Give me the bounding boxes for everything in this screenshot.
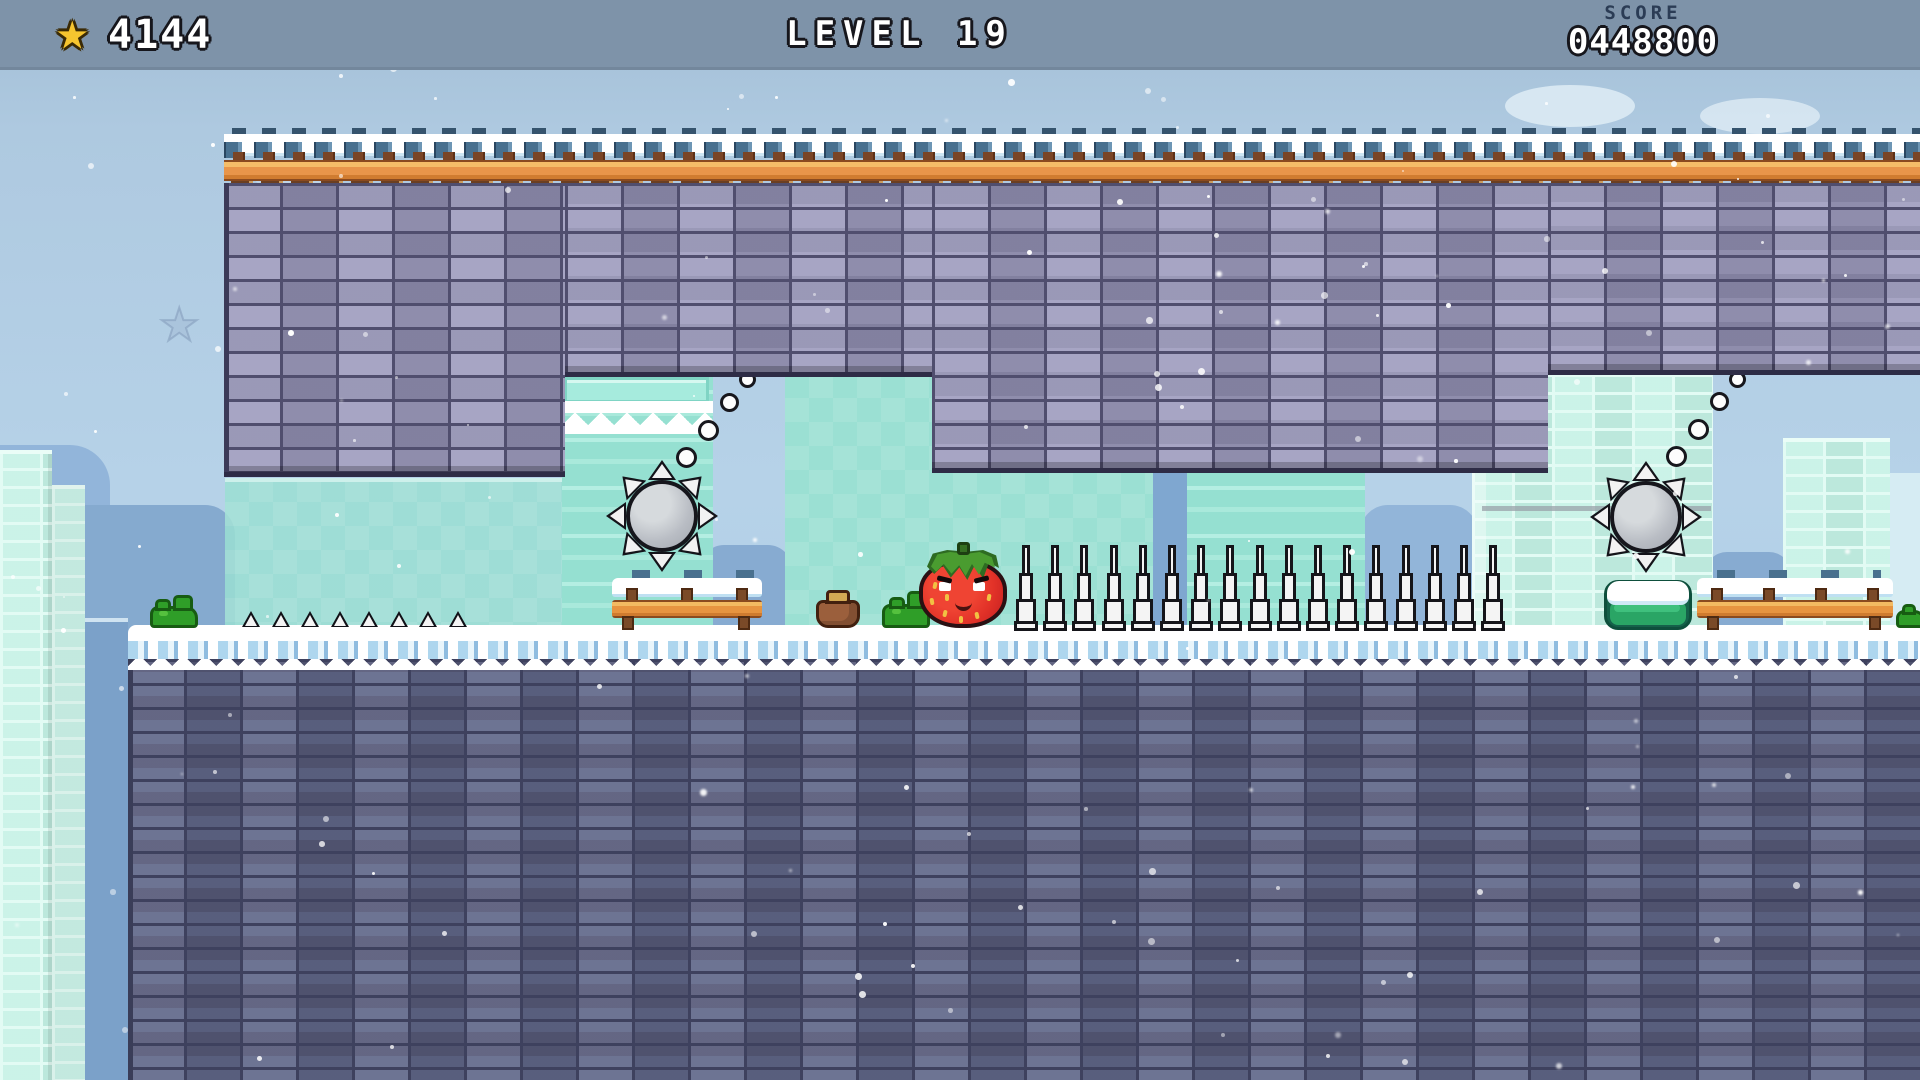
tall-spike	[1452, 545, 1476, 631]
score-panel: SCORE 0448800	[1548, 2, 1738, 62]
bubble	[1688, 419, 1709, 440]
spike-foot	[1335, 621, 1359, 631]
saw-tooth-fill	[610, 506, 624, 526]
small-spike	[390, 611, 408, 627]
tall-spike-row	[1014, 545, 1514, 631]
tall-spike	[1189, 545, 1213, 631]
spike-foot	[1364, 621, 1388, 631]
tall-spike	[1394, 545, 1418, 631]
spike-foot	[1072, 621, 1096, 631]
small-spike	[449, 611, 467, 627]
spike-foot	[1160, 621, 1184, 631]
saw-tooth	[606, 502, 626, 530]
spike-foot	[1218, 621, 1242, 631]
tall-spike	[1014, 545, 1038, 631]
strawberry-stem	[957, 542, 970, 555]
spike-foot	[1102, 621, 1126, 631]
bubble	[720, 393, 739, 412]
rail-beam	[224, 160, 1920, 181]
saw-tooth-fill	[652, 554, 672, 568]
mound-highlight	[1614, 604, 1680, 612]
small-spike	[242, 611, 260, 627]
tall-spike	[1248, 545, 1272, 631]
game-viewport[interactable]: ★	[0, 0, 1920, 1080]
fence-beam	[1697, 600, 1893, 618]
brick-ceiling-mid	[932, 183, 1548, 473]
bubble	[1710, 392, 1729, 411]
saw-tooth	[698, 502, 718, 530]
saw-disc	[626, 480, 698, 552]
tall-spike	[1160, 545, 1184, 631]
small-spike-fill	[422, 615, 434, 626]
tall-spike	[1277, 545, 1301, 631]
gap-silhouette	[85, 622, 128, 1080]
brick-ceiling-left	[224, 183, 565, 477]
wooden-fence	[612, 574, 762, 630]
left-ice-tower	[0, 450, 52, 1080]
small-spike-row	[242, 611, 482, 628]
small-spike-fill	[363, 615, 375, 626]
saw-tooth-fill	[652, 464, 672, 478]
ghost-star-silhouette: ★	[160, 288, 199, 352]
brick-ceiling-right	[1548, 183, 1920, 375]
wooden-fence	[1697, 574, 1893, 630]
brick-ceiling-notch	[565, 183, 932, 377]
cloud	[1505, 85, 1635, 127]
player-strawberry	[917, 546, 1009, 630]
score-value: 0448800	[1548, 22, 1738, 62]
saw-blade	[596, 450, 728, 582]
fence-leg	[738, 616, 750, 630]
spike-foot	[1481, 621, 1505, 631]
saw-tooth-fill	[1684, 507, 1698, 527]
ground-ice-studs	[128, 641, 1920, 659]
fence-leg	[1707, 616, 1719, 630]
mound-snow-cap	[1607, 581, 1689, 605]
sack-tie	[825, 601, 851, 604]
saw-disc	[1610, 481, 1682, 553]
spike-foot	[1248, 621, 1272, 631]
spike-foot	[1423, 621, 1447, 631]
bush-lump	[1902, 604, 1916, 615]
fence-leg	[622, 616, 634, 630]
tall-spike	[1043, 545, 1067, 631]
tall-spike	[1102, 545, 1126, 631]
bush	[150, 606, 198, 628]
money-sack	[816, 590, 860, 628]
saw-blade	[1580, 451, 1712, 583]
fence-snow-cap	[1697, 578, 1893, 597]
bubble	[698, 420, 719, 441]
spike-foot	[1277, 621, 1301, 631]
score-label: SCORE	[1548, 2, 1738, 24]
bush-edge	[1896, 610, 1920, 628]
ice-tower-background	[225, 478, 562, 630]
bush-highlight	[159, 611, 168, 616]
tall-spike	[1423, 545, 1447, 631]
tall-spike	[1131, 545, 1155, 631]
ground-platform	[128, 625, 1920, 1080]
small-spike-fill	[304, 615, 316, 626]
small-spike	[301, 611, 319, 627]
small-spike	[272, 611, 290, 627]
saw-tooth	[1590, 503, 1610, 531]
spike-foot	[1189, 621, 1213, 631]
sack-body	[816, 600, 860, 628]
spike-foot	[1014, 621, 1038, 631]
bush-highlight	[892, 609, 901, 614]
saw-tooth	[1682, 503, 1702, 531]
snow-fringe-icicles	[562, 412, 713, 435]
left-ice-tower-step	[52, 485, 85, 1080]
bush-lump	[155, 599, 171, 611]
small-spike	[331, 611, 349, 627]
saw-tooth	[1632, 553, 1660, 573]
spike-foot	[1394, 621, 1418, 631]
saw-tooth	[1632, 461, 1660, 481]
tall-spike	[1218, 545, 1242, 631]
ground-bricks	[128, 659, 1920, 1080]
saw-tooth	[648, 552, 676, 572]
spike-foot	[1043, 621, 1067, 631]
strawberry-seed	[959, 616, 963, 623]
saw-tooth-fill	[700, 506, 714, 526]
spike-foot	[1306, 621, 1330, 631]
rail-track	[224, 128, 1920, 188]
saw-tooth-fill	[1594, 507, 1608, 527]
fence-leg	[1869, 616, 1881, 630]
small-spike-fill	[452, 615, 464, 626]
star-icon: ★	[56, 2, 89, 60]
tall-spike	[1306, 545, 1330, 631]
spike-foot	[1452, 621, 1476, 631]
spike-foot	[1131, 621, 1155, 631]
saw-tooth-fill	[1636, 465, 1656, 479]
strawberry-seed	[945, 594, 949, 601]
level-title: LEVEL 19	[786, 14, 1014, 54]
small-spike-fill	[275, 615, 287, 626]
saw-tooth	[648, 460, 676, 480]
tall-spike	[1481, 545, 1505, 631]
saw-tooth-fill	[1636, 555, 1656, 569]
ice-cap-block	[564, 377, 709, 403]
bush-lump	[889, 597, 905, 609]
tall-spike	[1072, 545, 1096, 631]
small-spike-fill	[245, 615, 257, 626]
star-counter: 4144	[108, 12, 212, 58]
small-spike-fill	[393, 615, 405, 626]
tall-spike	[1364, 545, 1388, 631]
snow-mound	[1604, 580, 1692, 630]
tall-spike	[1335, 545, 1359, 631]
small-spike	[419, 611, 437, 627]
small-spike-fill	[334, 615, 346, 626]
small-spike	[360, 611, 378, 627]
bush-lump	[173, 595, 193, 611]
hud-bar: ★ 4144 LEVEL 19 SCORE 0448800	[0, 0, 1920, 70]
